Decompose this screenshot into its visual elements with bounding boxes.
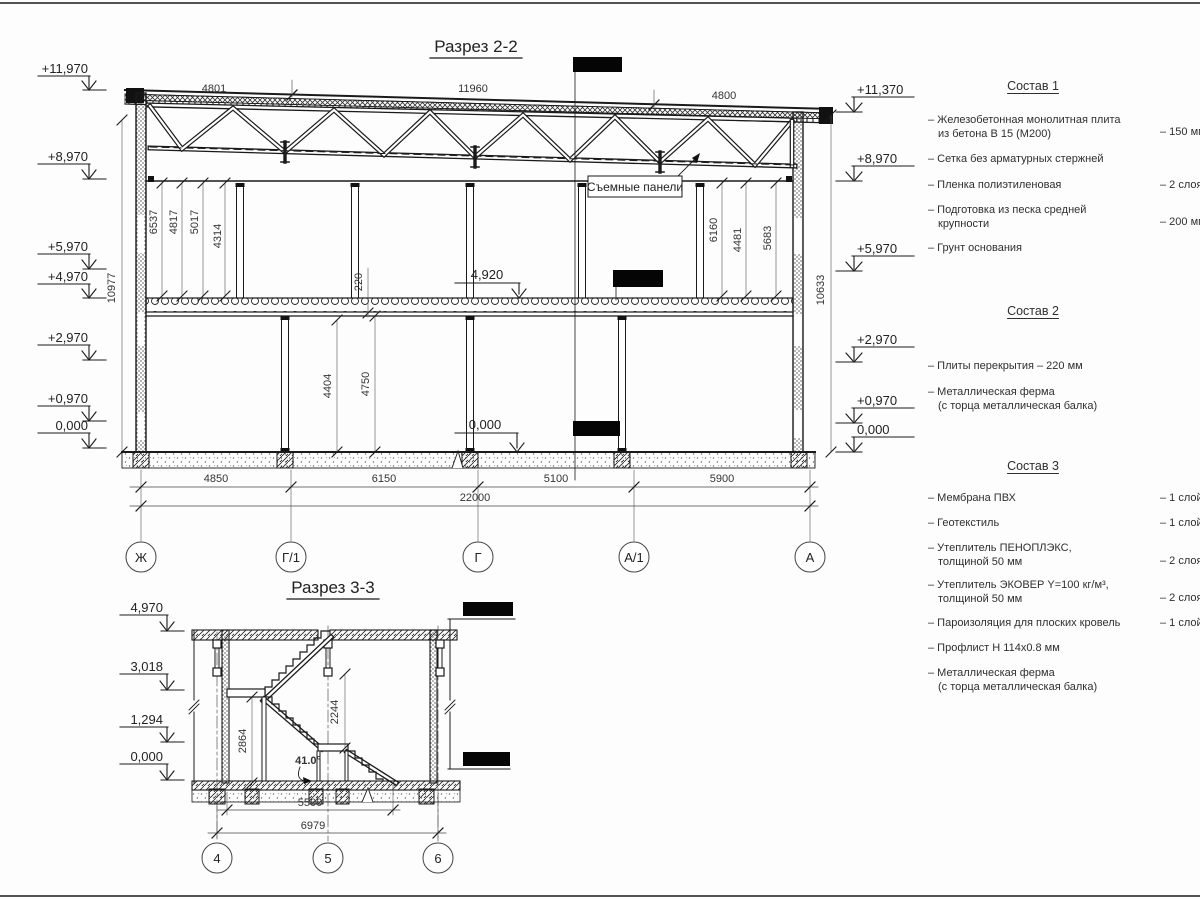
material-value: – 1 слой: [1160, 492, 1200, 504]
material-value: – 1 слой: [1160, 617, 1200, 629]
drawing-canvas: Разрез 2-2: [0, 0, 1200, 900]
material-item: – Профлист Н 114х0.8 мм: [928, 642, 1173, 656]
material-item: – Утеплитель ЭКОВЕР Y=100 кг/м³, толщино…: [928, 579, 1173, 606]
material-item: – Плиты перекрытия – 220 мм: [928, 360, 1173, 374]
materials-panel: Состав 1 – Железобетонная монолитная пли…: [0, 0, 1200, 900]
material-item: – Сетка без арматурных стержней: [928, 153, 1173, 167]
material-item: – Металлическая ферма (с торца металличе…: [928, 667, 1173, 694]
materials-2-title: Состав 2: [958, 304, 1108, 318]
materials-3-title: Состав 3: [958, 459, 1108, 473]
material-value: – 200 мм: [1160, 216, 1200, 228]
material-value: – 2 слоя: [1160, 179, 1200, 191]
material-item: – Металлическая ферма (с торца металличе…: [928, 386, 1173, 413]
material-value: – 1 слой: [1160, 517, 1200, 529]
material-item: – Утеплитель ПЕНОПЛЭКС, толщиной 50 мм: [928, 542, 1173, 569]
materials-1-title: Состав 1: [958, 79, 1108, 93]
material-item: – Геотекстиль: [928, 517, 1173, 531]
material-item: – Грунт основания: [928, 242, 1173, 256]
material-value: – 150 мм: [1160, 126, 1200, 138]
material-item: – Железобетонная монолитная плита из бет…: [928, 114, 1173, 141]
material-item: – Мембрана ПВХ: [928, 492, 1173, 506]
material-item: – Подготовка из песка средней крупности: [928, 204, 1173, 231]
material-item: – Пароизоляция для плоских кровель: [928, 617, 1173, 631]
material-value: – 2 слоя: [1160, 592, 1200, 604]
material-item: – Пленка полиэтиленовая: [928, 179, 1173, 193]
material-value: – 2 слоя: [1160, 555, 1200, 567]
